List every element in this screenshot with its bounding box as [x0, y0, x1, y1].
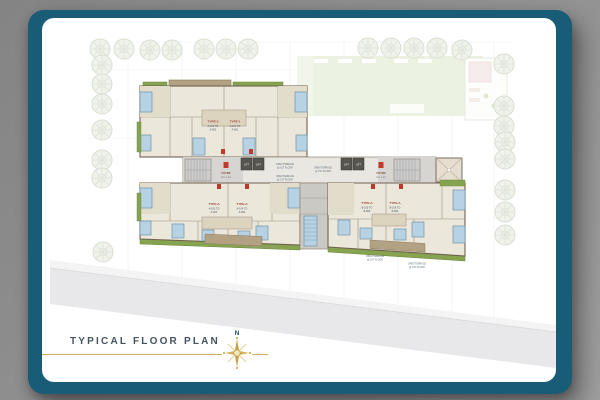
plan-card: LIFT LIFT LIFT LIFT FOYER 12'0" X 8'0" F… [42, 18, 556, 382]
svg-text:TYPE-1: TYPE-1 [230, 120, 241, 124]
staircase-left [185, 159, 211, 181]
svg-text:B-905: B-905 [364, 210, 371, 213]
svg-text:A-104 TO: A-104 TO [237, 207, 248, 210]
svg-text:TYPE-A: TYPE-A [361, 201, 373, 205]
svg-text:A-902: A-902 [210, 129, 217, 132]
lift-label: LIFT [344, 165, 349, 167]
plan-title: TYPICAL FLOOR PLAN [70, 336, 220, 347]
svg-text:A-101 TO: A-101 TO [230, 125, 241, 128]
svg-text:B-106 TO: B-106 TO [390, 206, 401, 209]
foyer-label: FOYER [377, 171, 386, 175]
presentation-frame: LIFT LIFT LIFT LIFT FOYER 12'0" X 8'0" F… [28, 10, 572, 394]
bottom-left-wing [137, 183, 300, 250]
svg-text:TYPE-2: TYPE-2 [208, 120, 219, 124]
north-compass-icon: N [215, 320, 259, 382]
svg-text:TYPE-A: TYPE-A [236, 202, 248, 206]
svg-text:@ 1ST FLOOR: @ 1ST FLOOR [315, 171, 331, 173]
svg-text:TYPE-A: TYPE-A [389, 201, 401, 205]
top-wing [137, 80, 307, 157]
svg-text:A-102 TO: A-102 TO [208, 125, 219, 128]
corridor: LIFT LIFT LIFT LIFT FOYER 12'0" X 8'0" F… [183, 157, 462, 183]
gold-divider [42, 354, 222, 355]
staircase-right [394, 159, 420, 181]
foyer-dim: 12'0" X 8'0" [221, 177, 232, 179]
svg-text:@ 1ST FLOOR: @ 1ST FLOOR [367, 259, 383, 261]
service-connector [300, 183, 328, 249]
svg-text:TYPE-A: TYPE-A [208, 202, 220, 206]
plan-footer: TYPICAL FLOOR PLAN N [42, 322, 556, 382]
svg-text:OPEN TERRACE: OPEN TERRACE [276, 175, 295, 178]
bottom-right-wing [328, 180, 465, 261]
foyer-label: FOYER [222, 171, 231, 175]
north-label: N [235, 330, 240, 337]
svg-text:OPEN TERRACE: OPEN TERRACE [408, 263, 427, 266]
lift-label: LIFT [356, 165, 361, 167]
lift-label: LIFT [244, 165, 249, 167]
shaft-room [436, 158, 462, 182]
svg-text:B-906: B-906 [392, 210, 399, 213]
svg-text:OPEN TERRACE: OPEN TERRACE [314, 167, 333, 170]
svg-text:OPEN TERRACE: OPEN TERRACE [276, 163, 295, 166]
foyer-dim: 12'0" X 8'0" [376, 177, 387, 179]
svg-text:A-901: A-901 [232, 129, 239, 132]
svg-text:B-105 TO: B-105 TO [362, 206, 373, 209]
svg-text:A-903: A-903 [211, 211, 218, 214]
svg-text:A-103 TO: A-103 TO [209, 207, 220, 210]
svg-text:@ 1ST FLOOR: @ 1ST FLOOR [277, 167, 293, 169]
svg-text:A-904: A-904 [239, 211, 246, 214]
svg-text:OPEN TERRACE: OPEN TERRACE [366, 255, 385, 258]
lift-label: LIFT [256, 165, 261, 167]
svg-text:@ 1ST FLOOR: @ 1ST FLOOR [277, 179, 293, 181]
svg-text:@ 1ST FLOOR: @ 1ST FLOOR [409, 267, 425, 269]
